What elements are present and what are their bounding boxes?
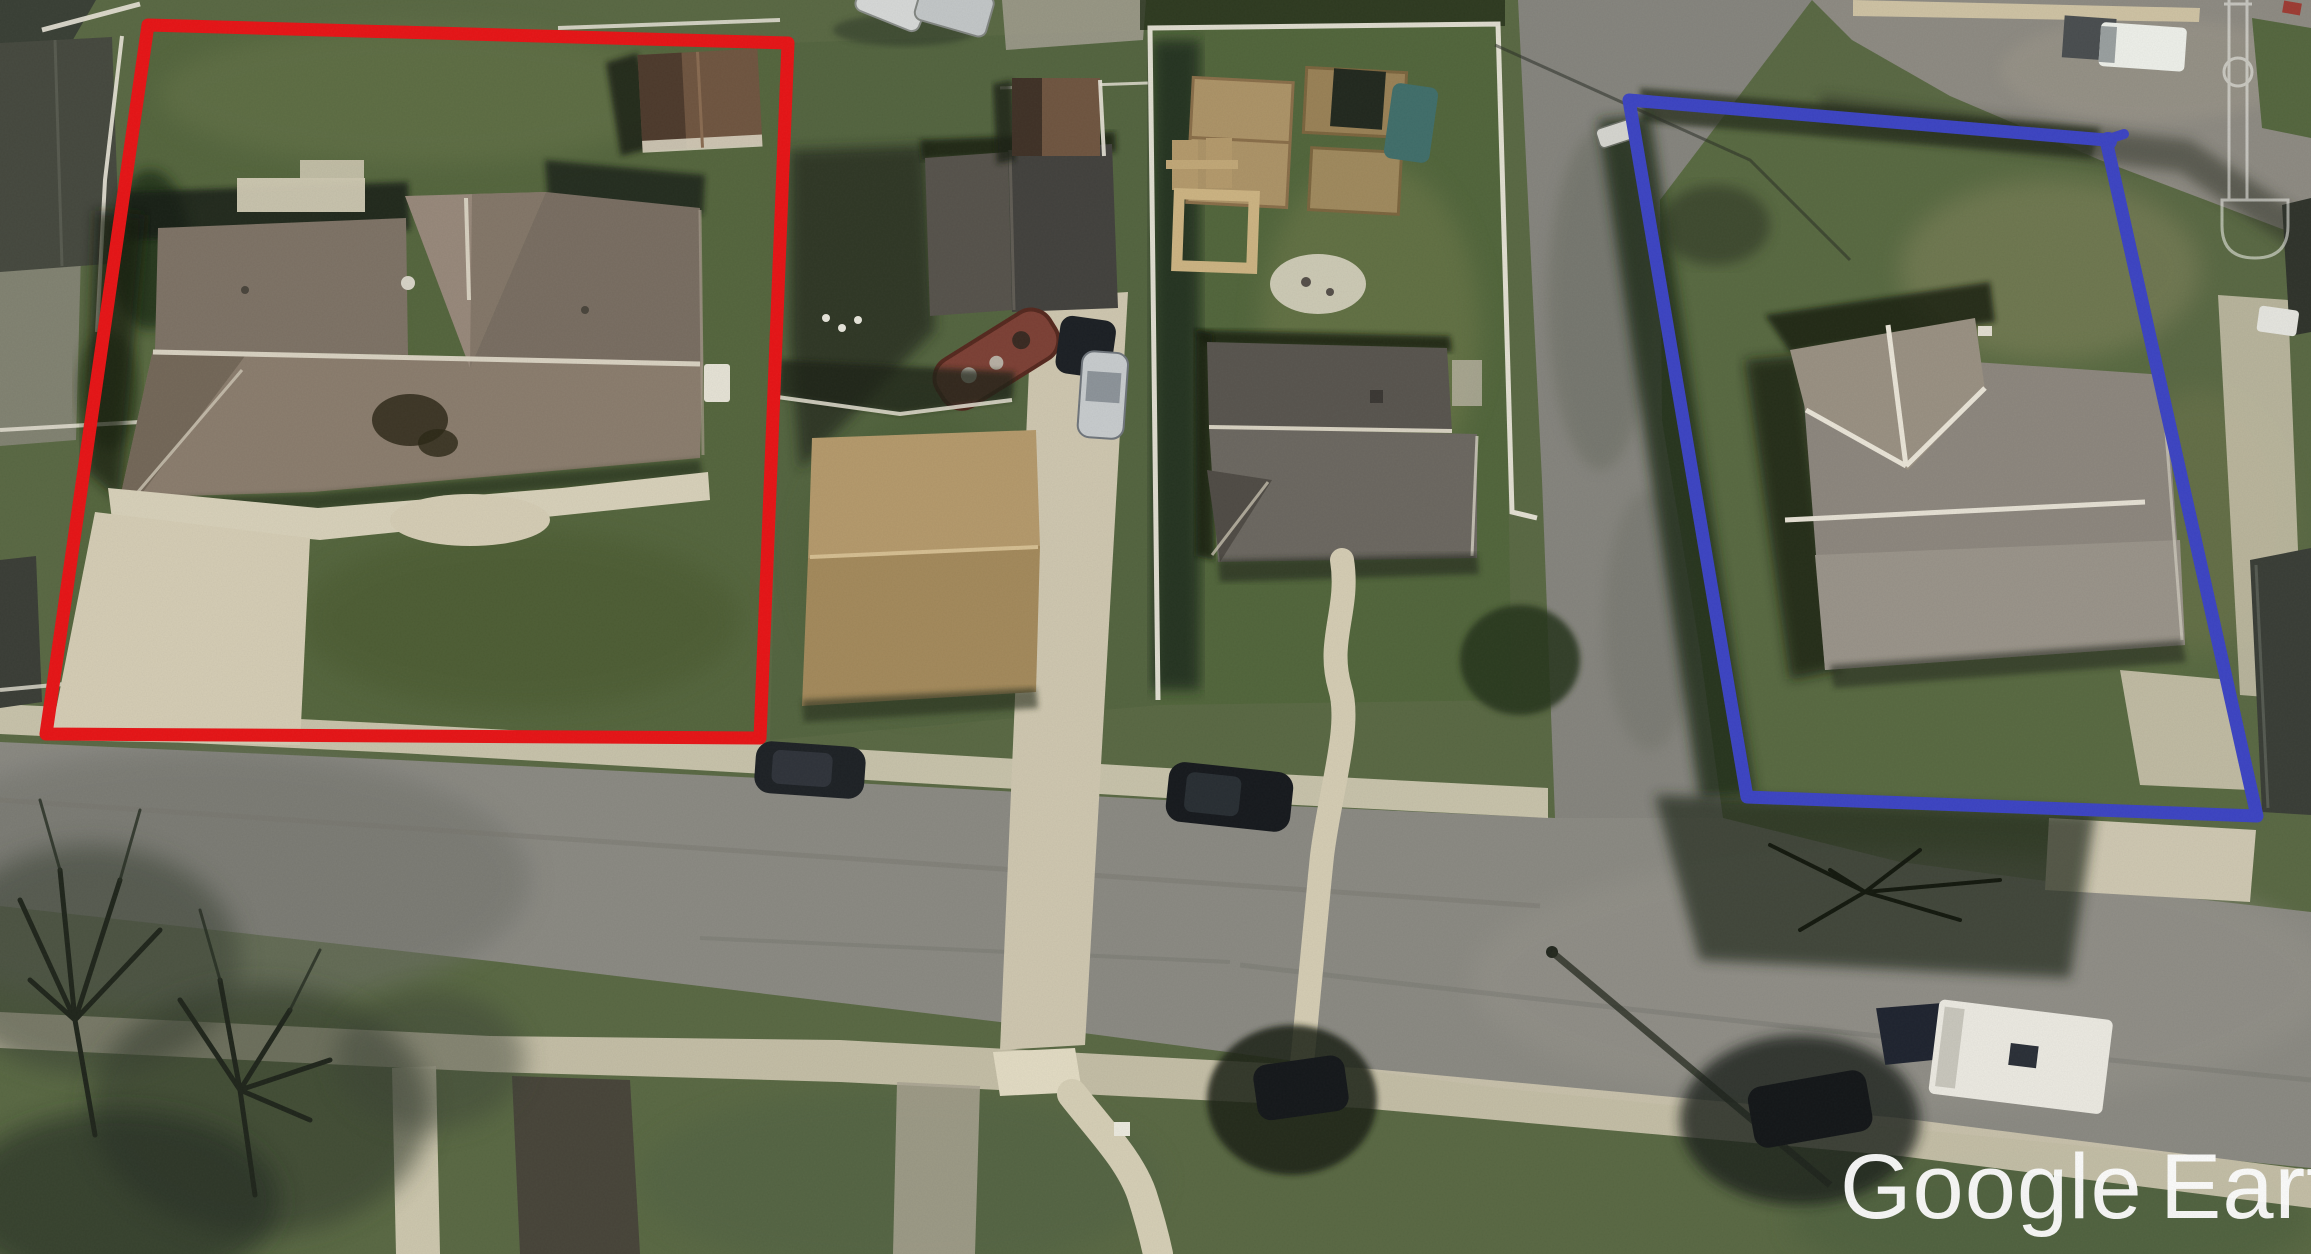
photo-grain-light xyxy=(0,0,2311,1254)
google-earth-viewport[interactable]: Google Earth xyxy=(0,0,2311,1254)
satellite-imagery: Google Earth xyxy=(0,0,2311,1254)
